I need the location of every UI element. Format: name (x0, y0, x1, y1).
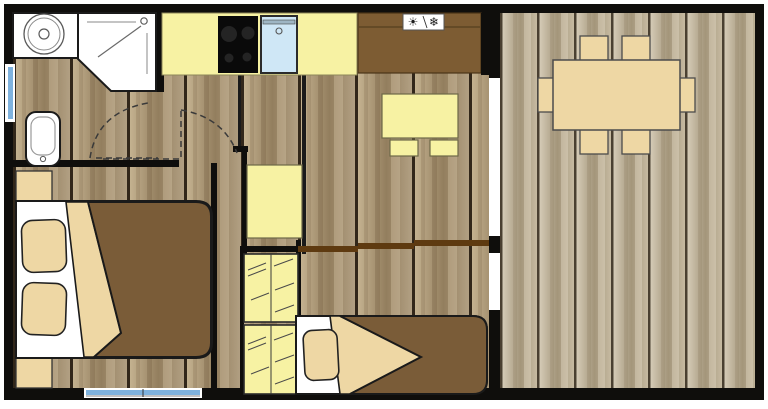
terrace-chair (622, 36, 650, 62)
kitchen-unit (162, 13, 357, 75)
storage-cabinet: ☀ ❄ (358, 13, 489, 75)
floor-plan-page: ☀ ❄ (0, 0, 768, 409)
shower-head-icon (141, 18, 147, 24)
floor-plan-canvas: ☀ ❄ (0, 0, 768, 409)
rail-segment (358, 243, 414, 249)
terrace-chair (538, 78, 554, 112)
burner (243, 53, 252, 62)
rail-segment (414, 240, 489, 246)
terrace-chair (580, 36, 608, 62)
wall-segment-hall-thin (238, 75, 241, 150)
burner (221, 26, 237, 42)
pillow (21, 219, 67, 273)
washbasin-unit (13, 13, 78, 58)
sun-icon: ☀ (408, 15, 419, 29)
window-left (5, 64, 15, 122)
window-bottom (84, 388, 202, 398)
single-bed (296, 316, 487, 394)
kitchen-sink (261, 16, 297, 73)
pillow (303, 329, 340, 381)
faucet-bar (263, 20, 295, 24)
burner (242, 27, 255, 40)
rail-segment (298, 246, 358, 252)
nightstand (16, 357, 52, 388)
terrace-chair (580, 128, 608, 154)
wall-segment-living-west (302, 75, 306, 254)
washbasin-bowl (24, 14, 64, 54)
rail-wall-anchor (489, 236, 500, 253)
double-bedroom-furniture (16, 171, 212, 388)
terrace-table (553, 60, 680, 130)
patio-door-opening (489, 253, 500, 310)
terrace-chair (679, 78, 695, 112)
wall-segment-cabinet-end (481, 13, 489, 75)
pillow (21, 282, 67, 336)
kitchen-counter (162, 13, 357, 75)
indoor-table (382, 94, 458, 138)
snowflake-icon: ❄ (429, 15, 439, 29)
indoor-chair (390, 140, 418, 156)
window-glass (8, 67, 13, 119)
wall-segment-cabinet-left (242, 146, 247, 254)
patio-door-opening (489, 78, 500, 238)
toilet-flush-icon (40, 156, 45, 161)
toilet (26, 112, 60, 166)
nightstand (16, 171, 52, 201)
indoor-chair (430, 140, 458, 156)
fridge-cabinet (247, 165, 302, 238)
burner (225, 54, 234, 63)
cooktop (218, 16, 258, 73)
terrace-chair (622, 128, 650, 154)
